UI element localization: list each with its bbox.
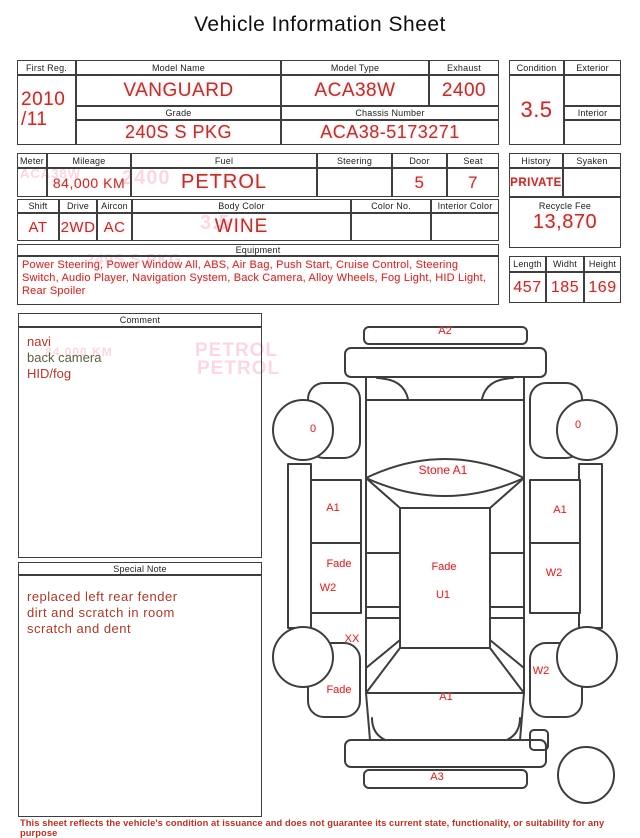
diagram-label-0: 0: [310, 423, 316, 435]
shift-header: Shift: [17, 199, 59, 213]
body-color-value: WINE: [132, 213, 351, 241]
right-sill: [579, 464, 602, 628]
history-value: PRIVATE: [509, 168, 563, 197]
drive-value: 2WD: [59, 213, 97, 241]
disclaimer-text: This sheet reflects the vehicle's condit…: [20, 818, 640, 838]
height-value: 169: [584, 272, 621, 303]
seat-header: Seat: [447, 153, 499, 168]
aircon-header: Aircon: [97, 199, 132, 213]
model-type-value: ACA38W: [281, 75, 429, 106]
meter-value: [17, 168, 47, 197]
chassis-number-value: ACA38-5173271: [281, 120, 499, 145]
comment-line: HID/fog: [27, 366, 71, 382]
recycle-fee-box: Recycle Fee 13,870: [509, 197, 621, 248]
interior-color-header: Interior Color: [431, 199, 499, 213]
diagram-label-xx: XX: [345, 633, 360, 645]
interior-header: Interior: [564, 106, 621, 120]
special-note-line: dirt and scratch in room: [27, 605, 175, 621]
exhaust-value: 2400: [429, 75, 499, 106]
windshield-left-arc: [377, 378, 408, 399]
diagram-label-a1: A1: [326, 502, 339, 514]
length-header: Length: [509, 256, 546, 272]
diagram-label-fade: Fade: [326, 558, 351, 570]
spare-tire: [558, 747, 614, 803]
special-note-line: scratch and dent: [27, 621, 131, 637]
rear-window: [366, 648, 524, 693]
comment-line: back camera: [27, 350, 101, 366]
diagram-label-w2: W2: [320, 582, 337, 594]
condition-header: Condition: [509, 60, 564, 75]
left-door-panel: [311, 543, 361, 613]
car-damage-diagram: A200Stone A1A1A1FadeW2FadeU1W2XXW2FadeA1…: [268, 316, 640, 812]
front-left-wheel: [273, 400, 333, 460]
first-reg-month: /11: [21, 110, 48, 130]
diagram-label-fade: Fade: [326, 684, 351, 696]
left-sill: [288, 464, 311, 628]
meter-header: Meter: [17, 153, 47, 168]
interior-value: [564, 120, 621, 145]
windshield-right-arc: [482, 378, 513, 399]
special-note-line: replaced left rear fender: [27, 589, 178, 605]
model-name-value: VANGUARD: [76, 75, 281, 106]
condition-value: 3.5: [509, 75, 564, 145]
diagram-label-a3: A3: [430, 771, 443, 783]
length-value: 457: [509, 272, 546, 303]
special-note-header: Special Note: [18, 562, 262, 575]
special-note-body: replaced left rear fenderdirt and scratc…: [18, 575, 262, 817]
grade-value: 240S S PKG: [76, 120, 281, 145]
comment-line: navi: [27, 334, 51, 350]
width-value: 185: [546, 272, 584, 303]
mileage-header: Mileage: [47, 153, 131, 168]
color-no-header: Color No.: [351, 199, 431, 213]
body-color-header: Body Color: [132, 199, 351, 213]
right-door-window: [490, 553, 524, 607]
exhaust-header: Exhaust: [429, 60, 499, 75]
seat-value: 7: [447, 168, 499, 197]
rear-left-wheel: [273, 627, 333, 687]
recycle-fee-value: 13,870: [533, 211, 597, 234]
diagram-label-a1: A1: [553, 504, 566, 516]
model-name-header: Model Name: [76, 60, 281, 75]
history-header: History: [509, 153, 563, 168]
equipment-value: Power Steering, Power Window All, ABS, A…: [17, 256, 499, 305]
comment-header: Comment: [18, 313, 262, 327]
grade-header: Grade: [76, 106, 281, 120]
diagram-label-fade: Fade: [431, 561, 456, 573]
diagram-label-a1: A1: [439, 691, 452, 703]
width-header: Widht: [546, 256, 584, 272]
rear-bumper: [364, 770, 527, 788]
left-door-window: [366, 553, 400, 607]
door-header: Door: [392, 153, 447, 168]
front-panel: [345, 348, 546, 377]
first-reg-year: 2010: [21, 90, 65, 110]
diagram-label-a2: A2: [438, 325, 451, 337]
rear-deck-right: [520, 693, 524, 740]
diagram-label-u1: U1: [436, 589, 450, 601]
rear-panel: [345, 740, 546, 767]
height-header: Height: [584, 256, 621, 272]
rear-right-wheel: [557, 627, 617, 687]
fuel-value: PETROL: [131, 168, 317, 197]
drive-header: Drive: [59, 199, 97, 213]
rear-deck-left: [366, 693, 370, 740]
fuel-header: Fuel: [131, 153, 317, 168]
diagram-label-0: 0: [575, 419, 581, 431]
shift-value: AT: [17, 213, 59, 241]
model-type-header: Model Type: [281, 60, 429, 75]
recycle-fee-header: Recycle Fee: [539, 201, 591, 211]
chassis-number-header: Chassis Number: [281, 106, 499, 120]
aircon-value: AC: [97, 213, 132, 241]
syaken-value: [563, 168, 621, 197]
steering-header: Steering: [317, 153, 392, 168]
exterior-value: [564, 75, 621, 106]
color-no-value: [351, 213, 431, 241]
steering-value: [317, 168, 392, 197]
first-reg-value: 2010 /11: [17, 75, 76, 145]
vehicle-information-sheet: { "title": "Vehicle Information Sheet", …: [0, 0, 640, 835]
equipment-header: Equipment: [17, 244, 499, 256]
front-right-wheel: [557, 400, 617, 460]
first-reg-header: First Reg.: [17, 60, 76, 75]
diagram-label-w2: W2: [533, 665, 550, 677]
exterior-header: Exterior: [564, 60, 621, 75]
diagram-label-w2: W2: [546, 567, 563, 579]
comment-body: naviback cameraHID/fog: [18, 327, 262, 558]
page-title: Vehicle Information Sheet: [0, 13, 640, 37]
syaken-header: Syaken: [563, 153, 621, 168]
diagram-label-stone-a1: Stone A1: [419, 463, 468, 477]
mileage-value: 84,000 KM: [47, 168, 131, 197]
door-value: 5: [392, 168, 447, 197]
interior-color-value: [431, 213, 499, 241]
